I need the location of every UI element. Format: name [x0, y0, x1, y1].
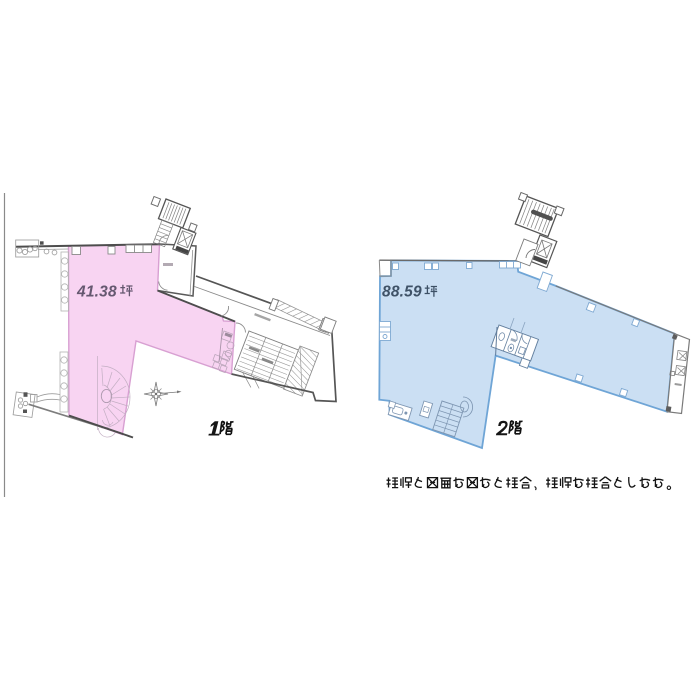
svg-text:41.38: 41.38 [76, 284, 117, 301]
svg-text:88.59: 88.59 [382, 284, 422, 301]
